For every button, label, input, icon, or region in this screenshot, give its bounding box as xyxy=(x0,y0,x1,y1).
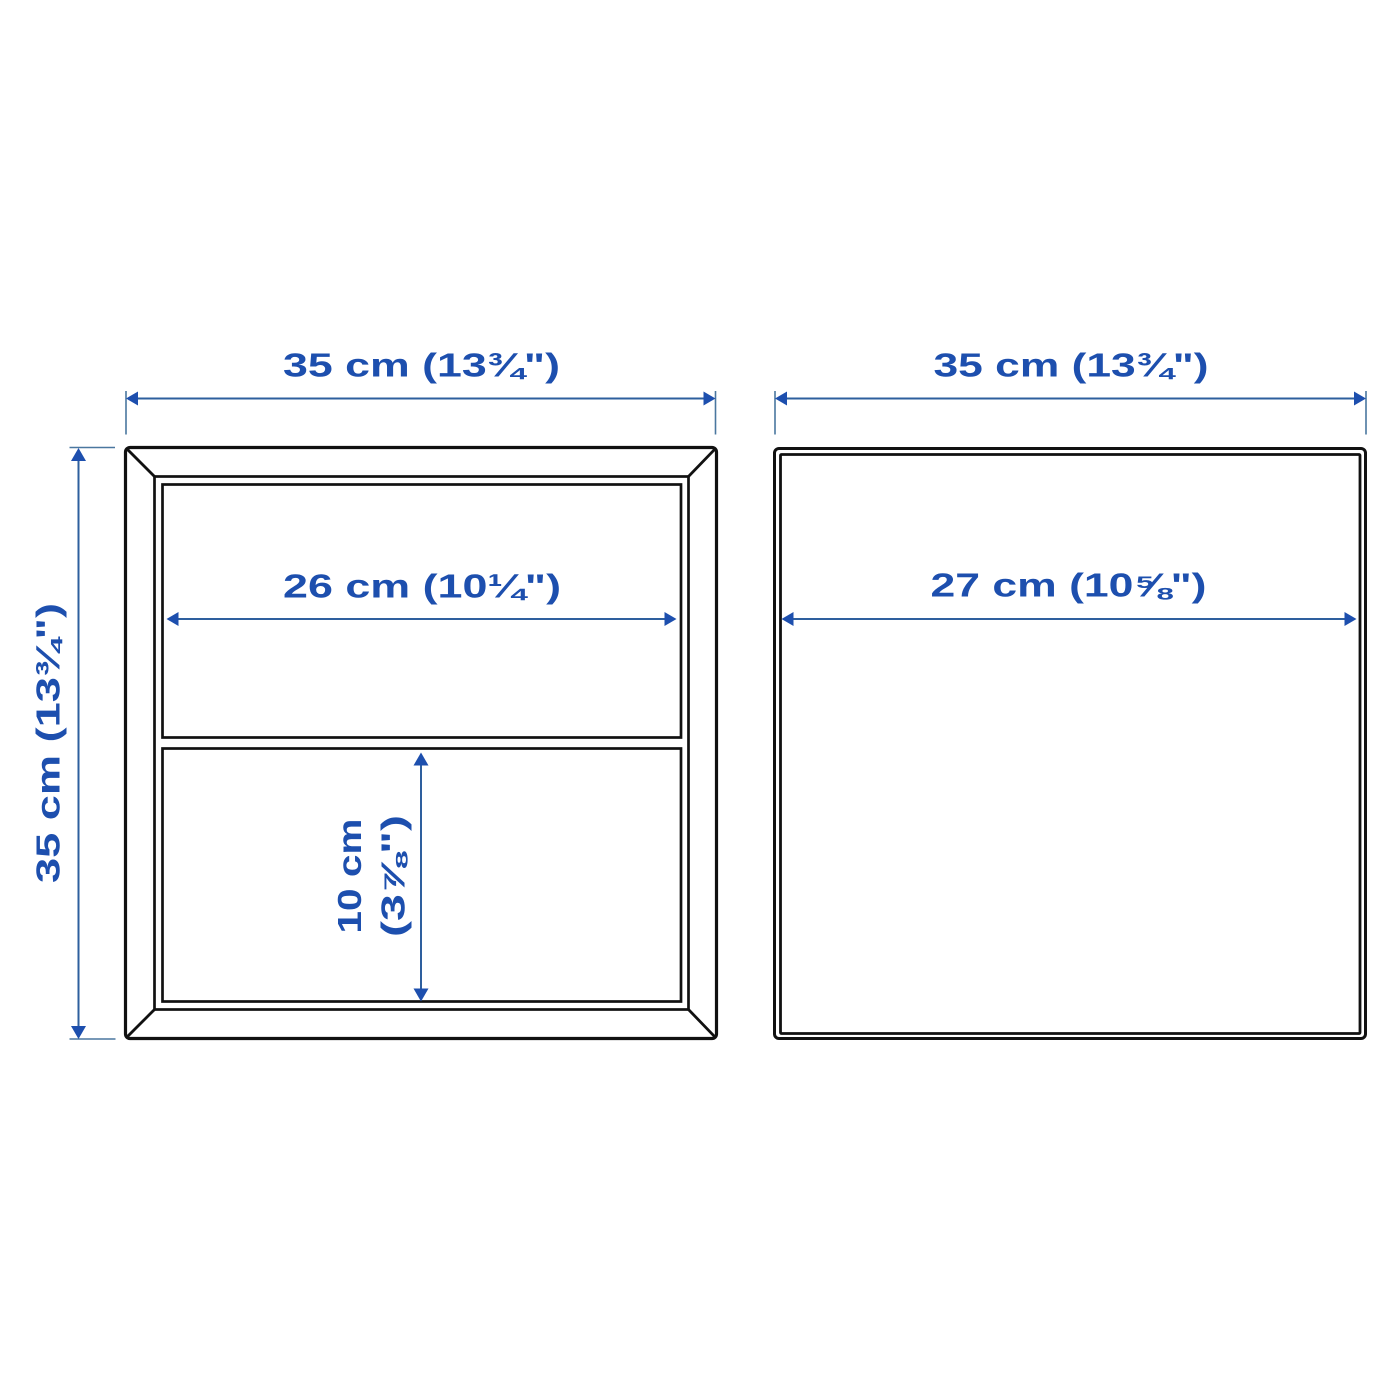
svg-text:35 cm (13¾"): 35 cm (13¾") xyxy=(30,603,67,883)
svg-text:35 cm (13¾"): 35 cm (13¾") xyxy=(934,347,1209,384)
svg-text:35 cm (13¾"): 35 cm (13¾") xyxy=(283,347,560,384)
svg-text:26 cm (10¼"): 26 cm (10¼") xyxy=(283,568,561,605)
svg-text:27 cm (10⅝"): 27 cm (10⅝") xyxy=(931,567,1207,604)
svg-text:10 cm: 10 cm xyxy=(331,819,368,934)
svg-text:(3⅞"): (3⅞") xyxy=(375,815,412,937)
